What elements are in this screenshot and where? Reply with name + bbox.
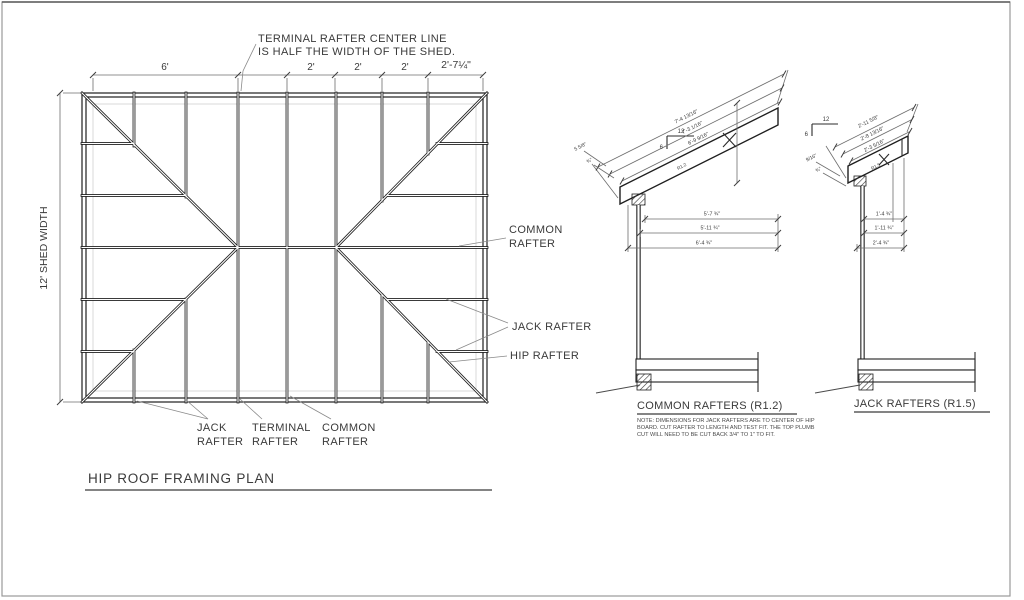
label-common-bottom-1: COMMON [322, 422, 376, 434]
common-end-dim-2: ¾" [586, 157, 594, 165]
plan-rafter-members [82, 93, 487, 402]
common-detail-title: COMMON RAFTERS (R1.2) [637, 400, 783, 412]
jack-run-dim-1: 1'-4 ¾" [876, 212, 893, 218]
callout-line1: TERMINAL RAFTER CENTER LINE [258, 33, 447, 45]
dim-top-2ft-c: 2' [401, 62, 409, 73]
common-run-dim-3: 6'-4 ¾" [696, 241, 713, 247]
jack-slope-symbol: 12 6 [805, 117, 838, 138]
jack-deck-base [815, 352, 975, 393]
label-jack-bottom-2: RAFTER [197, 436, 243, 448]
hip-roof-plan: 6' 2' 2' 2' 2'-7¼" 12' SHED WIDTH TERMIN… [38, 33, 592, 490]
common-run-dim-1: 5'-7 ¾" [704, 212, 721, 218]
jack-run-dim-3: 2'-4 ¾" [873, 241, 890, 247]
label-terminal-bottom-1: TERMINAL [252, 422, 311, 434]
plan-bottom-labels: JACK RAFTER TERMINAL RAFTER COMMON RAFTE… [137, 396, 376, 448]
top-dimension-string: 6' 2' 2' 2' 2'-7¼" [90, 59, 486, 91]
common-rafter-detail: 12 6 R1.2 7'-4 13/16" 7'-3 1/16" 6'-9 9/… [573, 70, 814, 438]
note-line1: NOTE: DIMENSIONS FOR JACK RAFTERS ARE TO… [637, 418, 815, 424]
label-terminal-bottom-2: RAFTER [252, 436, 298, 448]
jack-rafter-detail: 12 6 R1.5 2'-11 5/8" 2'-8 13/16" 2'-3 5/… [805, 104, 990, 412]
common-seat-plate [632, 194, 645, 205]
plan-right-labels: COMMON RAFTER JACK RAFTER HIP RAFTER [446, 224, 592, 362]
common-deck-base [596, 352, 758, 393]
label-common-rafter-right-2: RAFTER [509, 238, 555, 250]
detail-note: NOTE: DIMENSIONS FOR JACK RAFTERS ARE TO… [637, 418, 815, 438]
dim-top-2ft-7-1-4: 2'-7¼" [441, 59, 471, 71]
jack-end-dim-2: ¾" [815, 166, 823, 174]
dim-top-6ft: 6' [161, 62, 169, 73]
note-line2: BOARD. CUT RAFTER TO LENGTH AND TEST FIT… [637, 425, 815, 431]
jack-slope-dim-outer: 2'-11 5/8" [857, 114, 879, 129]
top-dimension-extensions [93, 78, 483, 91]
label-jack-rafter-right: JACK RAFTER [512, 321, 592, 333]
note-line3: CUT WILL NEED TO BE CUT BACK 3/4" TO 1" … [637, 432, 775, 438]
jack-run-dim-2: 1'-11 ¾" [875, 226, 894, 232]
common-foundation-block [637, 374, 651, 390]
jack-end-dimensions: 9/16" ¾" [805, 153, 846, 186]
common-run-dimensions: 5'-7 ¾" 5'-11 ¾" 6'-4 ¾" [625, 205, 781, 252]
common-run-dim-2: 5'-11 ¾" [701, 226, 720, 232]
jack-slope-rise: 6 [805, 132, 809, 138]
leader-common-bottom [290, 396, 331, 419]
common-end-dimensions: 5 5/8" ¾" [573, 141, 614, 178]
callout-leader [241, 44, 256, 91]
dim-top-2ft-a: 2' [307, 62, 315, 73]
label-common-rafter-right-1: COMMON [509, 224, 563, 236]
jack-slope-run: 12 [823, 117, 830, 123]
framing-drawing: 6' 2' 2' 2' 2'-7¼" 12' SHED WIDTH TERMIN… [0, 0, 1024, 600]
label-common-bottom-2: RAFTER [322, 436, 368, 448]
leader-jack-bottom [137, 400, 208, 419]
jack-seat-plate [854, 176, 866, 186]
leader-jack-right [446, 299, 508, 350]
label-jack-bottom-1: JACK [197, 422, 227, 434]
jack-foundation-block [859, 374, 873, 390]
jack-detail-title: JACK RAFTERS (R1.5) [854, 398, 976, 410]
label-hip-rafter-right: HIP RAFTER [510, 350, 579, 362]
dim-left-shed-width: 12' SHED WIDTH [38, 206, 50, 289]
left-dimension: 12' SHED WIDTH [38, 90, 80, 405]
callout-line2: IS HALF THE WIDTH OF THE SHED. [258, 46, 455, 58]
leader-hip-right [449, 356, 507, 362]
plan-title: HIP ROOF FRAMING PLAN [88, 471, 275, 486]
common-end-dim-1: 5 5/8" [573, 141, 587, 152]
dim-top-2ft-b: 2' [354, 62, 362, 73]
jack-ground-line [815, 385, 860, 393]
common-slope-dim-mid: 7'-3 1/16" [681, 120, 704, 135]
drawing-sheet: 6' 2' 2' 2' 2'-7¼" 12' SHED WIDTH TERMIN… [0, 0, 1024, 600]
common-ground-line [596, 385, 640, 393]
terminal-rafter-callout: TERMINAL RAFTER CENTER LINE IS HALF THE … [241, 33, 455, 91]
